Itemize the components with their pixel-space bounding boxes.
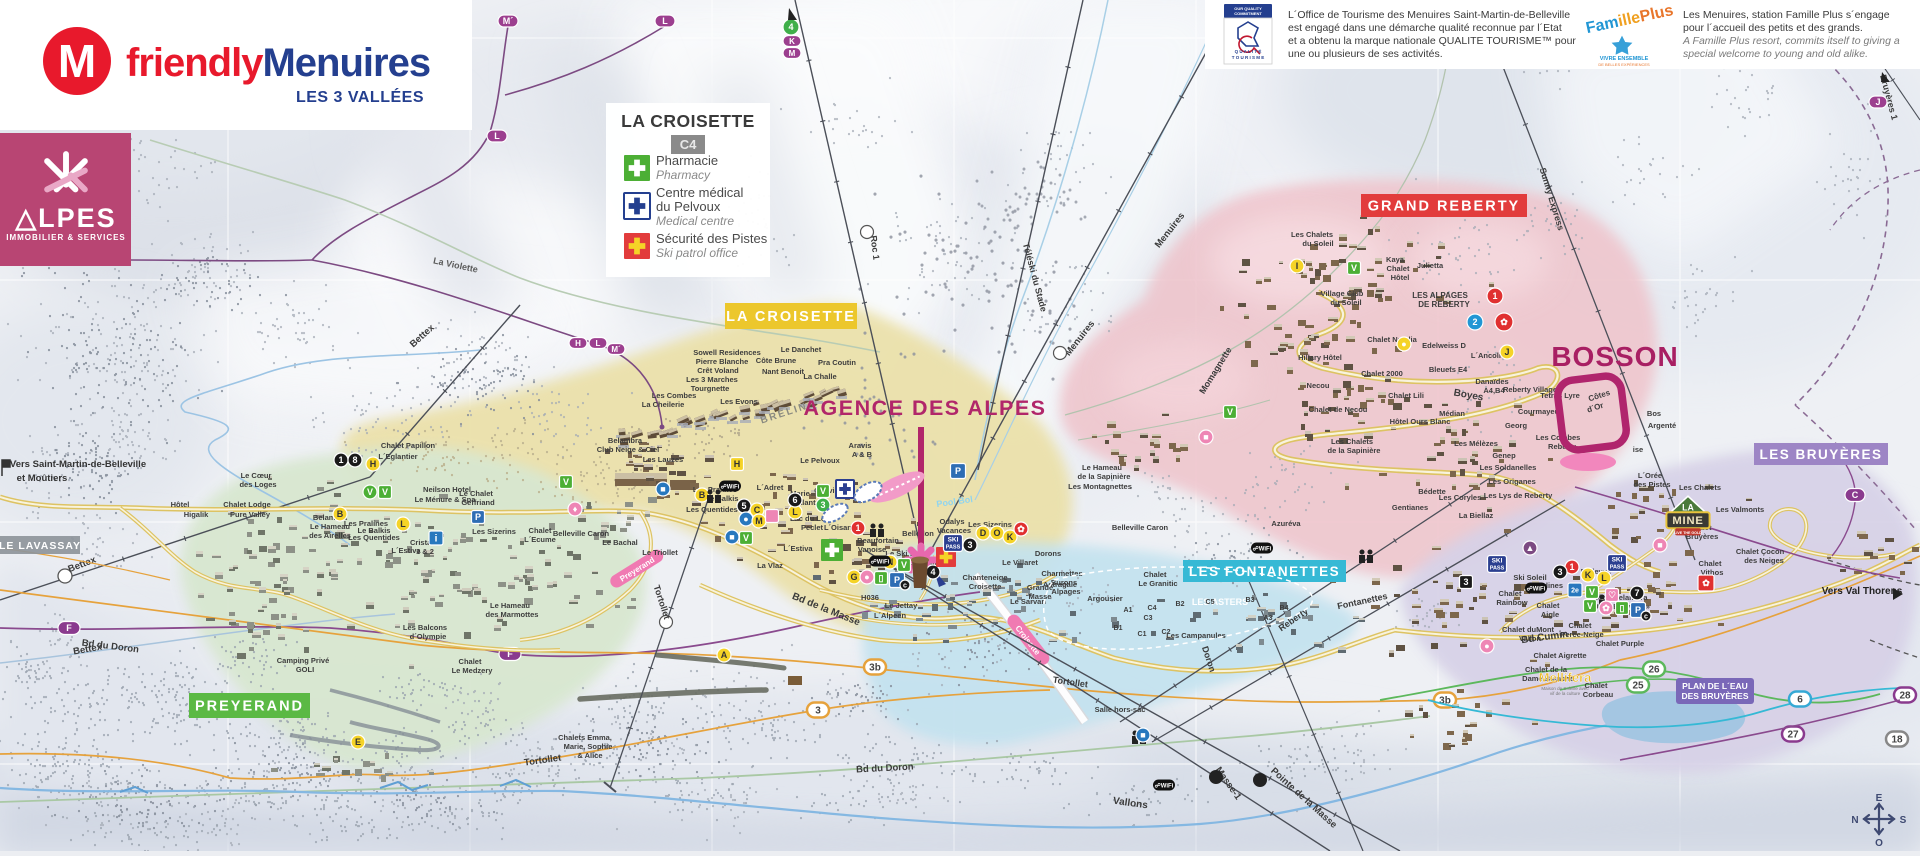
svg-text:5: 5	[741, 501, 746, 511]
svg-text:des Neiges: des Neiges	[1744, 556, 1784, 565]
svg-text:du Soleil: du Soleil	[1330, 298, 1361, 307]
svg-text:Chalets Emma,: Chalets Emma,	[558, 733, 612, 742]
svg-text:Marie, Sophie: Marie, Sophie	[564, 742, 613, 751]
svg-text:La Cheilerie: La Cheilerie	[642, 400, 685, 409]
svg-text:B4: B4	[1280, 605, 1289, 612]
svg-text:F: F	[66, 623, 72, 633]
svg-text:3: 3	[967, 540, 972, 550]
svg-text:3: 3	[1557, 567, 1562, 577]
svg-text:1: 1	[855, 523, 860, 533]
svg-text:des Airelles: des Airelles	[309, 531, 351, 540]
svg-text:d´Olympie: d´Olympie	[410, 632, 447, 641]
svg-text:Vers Saint-Martin-de-Bellevill: Vers Saint-Martin-de-Belleville	[10, 459, 146, 470]
svg-text:PASS: PASS	[1490, 566, 1505, 572]
svg-text:Chalet duMont: Chalet duMont	[1502, 625, 1555, 634]
svg-text:E: E	[1876, 793, 1883, 804]
svg-text:25: 25	[1632, 681, 1644, 692]
svg-text:PASS: PASS	[1610, 565, 1625, 571]
svg-text:28: 28	[1899, 691, 1911, 702]
svg-text:est engagé dans une démarche q: est engagé dans une démarche qualité rec…	[1288, 22, 1562, 34]
svg-text:A3: A3	[1264, 615, 1273, 622]
svg-text:Chalet: Chalet	[459, 657, 482, 666]
svg-text:Corbeau: Corbeau	[1583, 690, 1614, 699]
svg-text:C3: C3	[1144, 615, 1153, 622]
svg-text:Beaufortain: Beaufortain	[857, 536, 899, 545]
svg-text:P: P	[475, 512, 481, 522]
svg-text:26: 26	[1648, 665, 1660, 676]
svg-text:3b: 3b	[869, 663, 881, 674]
svg-text:C1: C1	[1138, 631, 1147, 638]
svg-text:Argousier: Argousier	[1087, 594, 1123, 603]
svg-text:Argenté: Argenté	[1648, 421, 1676, 430]
svg-text:Rainbow: Rainbow	[1496, 598, 1527, 607]
svg-text:27: 27	[1787, 730, 1799, 741]
svg-text:L´Alpeen: L´Alpeen	[874, 611, 907, 620]
svg-text:Le Jettay: Le Jettay	[885, 601, 918, 610]
svg-text:Nant Benoit: Nant Benoit	[762, 367, 805, 376]
svg-text:☍WiFi: ☍WiFi	[721, 484, 740, 491]
svg-text:3: 3	[1463, 577, 1468, 587]
svg-text:Les Chalets: Les Chalets	[1331, 437, 1373, 446]
svg-text:La Vlaz: La Vlaz	[757, 561, 783, 570]
svg-text:c: c	[903, 583, 907, 590]
svg-text:1 & 2: 1 & 2	[416, 547, 434, 556]
svg-text:1: 1	[1492, 291, 1497, 301]
svg-text:Aravis: Aravis	[849, 441, 872, 450]
svg-text:Le Bachal: Le Bachal	[602, 538, 637, 547]
svg-text:Chalet: Chalet	[1499, 589, 1522, 598]
svg-text:du Soleil: du Soleil	[1302, 239, 1333, 248]
svg-text:DES BRUYÈRES: DES BRUYÈRES	[1681, 691, 1748, 701]
svg-text:A & B: A & B	[852, 450, 873, 459]
svg-text:LES ASTERS: LES ASTERS	[1192, 597, 1248, 607]
svg-text:B1: B1	[1114, 625, 1123, 632]
svg-text:4: 4	[788, 22, 793, 32]
svg-text:■: ■	[1140, 730, 1145, 740]
svg-text:V: V	[563, 477, 569, 487]
svg-text:Chalet: Chalet	[529, 526, 552, 535]
svg-text:4: 4	[930, 567, 935, 577]
svg-text:V: V	[1227, 407, 1233, 417]
svg-text:♦: ♦	[573, 504, 578, 514]
svg-text:LES ALPAGES: LES ALPAGES	[1412, 291, 1468, 300]
svg-text:K: K	[1585, 570, 1592, 580]
svg-text:Club Neige & Ciel: Club Neige & Ciel	[597, 445, 660, 454]
svg-text:●: ●	[1401, 339, 1406, 349]
svg-text:7: 7	[1634, 588, 1639, 598]
svg-text:Belambra: Belambra	[608, 436, 643, 445]
svg-text:LA: LA	[1682, 503, 1694, 513]
svg-text:Le Granitic: Le Granitic	[1138, 579, 1177, 588]
svg-text:Centre médical: Centre médical	[656, 185, 744, 200]
svg-text:L: L	[400, 519, 406, 529]
svg-text:Village Club: Village Club	[1321, 289, 1364, 298]
svg-text:DE BELLES EXPÉRIENCES: DE BELLES EXPÉRIENCES	[1598, 62, 1650, 67]
svg-text:Les Soldanelles: Les Soldanelles	[1480, 463, 1537, 472]
svg-text:Bos: Bos	[1647, 409, 1661, 418]
svg-text:des Pistes: des Pistes	[1633, 480, 1670, 489]
svg-text:Les Lauzes: Les Lauzes	[643, 455, 683, 464]
svg-text:L´Estiva: L´Estiva	[783, 544, 813, 553]
svg-text:Vers Val Thorens: Vers Val Thorens	[1822, 586, 1903, 597]
svg-text:des Loges: des Loges	[239, 480, 276, 489]
svg-text:Les Lys de Reberty: Les Lys de Reberty	[1484, 491, 1553, 500]
svg-text:Hillary Hôtel: Hillary Hôtel	[1298, 353, 1342, 362]
svg-text:V: V	[820, 486, 826, 496]
svg-text:ise: ise	[1633, 445, 1643, 454]
svg-text:Médian: Médian	[1439, 409, 1465, 418]
svg-text:V: V	[901, 560, 907, 570]
svg-text:La Biellaz: La Biellaz	[1459, 511, 1494, 520]
svg-text:C: C	[1852, 490, 1859, 500]
svg-text:M´: M´	[503, 16, 514, 26]
svg-text:Perce-Neige: Perce-Neige	[1560, 630, 1603, 639]
svg-text:▯: ▯	[1620, 603, 1625, 613]
svg-text:LA CROISETTE: LA CROISETTE	[621, 111, 755, 131]
svg-text:Le Medzery: Le Medzery	[452, 666, 494, 675]
svg-text:Le Danchet: Le Danchet	[781, 345, 822, 354]
svg-text:V: V	[743, 533, 749, 543]
svg-text:●: ●	[743, 514, 748, 524]
svg-text:Chalet de Necou: Chalet de Necou	[1309, 405, 1368, 414]
svg-text:L´Ecume: L´Ecume	[524, 535, 556, 544]
svg-text:A1: A1	[1124, 607, 1133, 614]
svg-text:Chalet: Chalet	[1569, 621, 1592, 630]
svg-text:AGENCE DES ALPES: AGENCE DES ALPES	[803, 396, 1046, 420]
svg-text:Chalet Çocon: Chalet Çocon	[1736, 547, 1785, 556]
svg-text:3: 3	[815, 706, 821, 717]
svg-text:I: I	[1296, 261, 1299, 271]
svg-text:18: 18	[1891, 735, 1903, 746]
svg-text:✿: ✿	[1602, 603, 1610, 613]
svg-text:☍WiFi: ☍WiFi	[1155, 783, 1174, 790]
svg-text:▲: ▲	[1526, 543, 1535, 553]
svg-text:Chalet: Chalet	[1387, 264, 1410, 273]
svg-text:Le Sarvan: Le Sarvan	[1010, 597, 1046, 606]
svg-text:Camping Privé: Camping Privé	[277, 656, 330, 665]
svg-text:LES BRUYÈRES: LES BRUYÈRES	[1759, 447, 1882, 462]
svg-text:6: 6	[792, 495, 797, 505]
svg-text:DE REBERTY: DE REBERTY	[1418, 300, 1470, 309]
svg-text:special welcome to young and o: special welcome to young and old alike.	[1683, 48, 1868, 60]
svg-text:Les Valmonts: Les Valmonts	[1716, 505, 1764, 514]
svg-text:Sowell Residences: Sowell Residences	[693, 348, 761, 357]
svg-text:Aigle: Aigle	[1541, 610, 1559, 619]
svg-text:J: J	[1504, 347, 1509, 357]
svg-text:3: 3	[820, 500, 825, 510]
svg-text:1: 1	[1569, 562, 1574, 572]
svg-text:■: ■	[1657, 540, 1662, 550]
svg-text:Croisette: Croisette	[969, 582, 1002, 591]
svg-text:▯: ▯	[879, 573, 884, 583]
svg-text:PASS: PASS	[946, 545, 961, 551]
svg-text:Le Hameau: Le Hameau	[1082, 463, 1122, 472]
svg-text:une ou plusieurs de ses activi: une ou plusieurs de ses activités.	[1288, 48, 1443, 60]
svg-text:Les Chalets: Les Chalets	[1291, 230, 1333, 239]
svg-text:et a obtenu la marque national: et a obtenu la marque nationale QUALITE …	[1288, 35, 1576, 47]
svg-text:Le Pelvoux: Le Pelvoux	[800, 456, 840, 465]
svg-text:D: D	[980, 528, 987, 538]
svg-text:des Marmottes: des Marmottes	[486, 610, 539, 619]
svg-text:Les Mélèzes: Les Mélèzes	[1454, 439, 1498, 448]
svg-text:✿: ✿	[1702, 578, 1710, 588]
svg-text:L: L	[494, 131, 500, 141]
svg-text:Sécurité des Pistes: Sécurité des Pistes	[656, 231, 768, 246]
svg-text:Hôtel: Hôtel	[1391, 273, 1410, 282]
svg-text:Astragale: Astragale	[1043, 580, 1077, 589]
svg-text:Q U A L I T É: Q U A L I T É	[1235, 47, 1262, 54]
svg-text:Les Quentides: Les Quentides	[348, 533, 400, 542]
svg-text:Pharmacie: Pharmacie	[656, 153, 718, 168]
svg-text:Gentianes: Gentianes	[1392, 503, 1428, 512]
svg-text:C4: C4	[680, 137, 697, 152]
svg-text:de la Sapinière: de la Sapinière	[1328, 446, 1381, 455]
svg-text:BOSSON: BOSSON	[1551, 341, 1678, 372]
svg-text:Le Cœur: Le Cœur	[241, 471, 272, 480]
svg-text:V: V	[1587, 601, 1593, 611]
svg-text:i: i	[435, 534, 438, 545]
svg-text:Necou: Necou	[1307, 381, 1330, 390]
svg-text:H036: H036	[861, 593, 879, 602]
svg-text:H: H	[370, 459, 377, 469]
svg-text:B: B	[699, 490, 706, 500]
svg-text:L: L	[662, 16, 668, 26]
svg-text:M: M	[755, 516, 763, 526]
svg-text:Hôtel Ours Blanc: Hôtel Ours Blanc	[1390, 417, 1451, 426]
svg-text:V: V	[1589, 587, 1595, 597]
svg-text:Le Ménure & Spa: Le Ménure & Spa	[415, 495, 477, 504]
svg-text:et Moûtiers: et Moûtiers	[17, 473, 68, 484]
svg-text:Edelweiss D: Edelweiss D	[1422, 341, 1466, 350]
svg-text:pour l´accueil des petits et d: pour l´accueil des petits et des grands.	[1683, 22, 1863, 34]
svg-text:Higalik: Higalik	[184, 510, 209, 519]
svg-text:Ski patrol office: Ski patrol office	[656, 246, 738, 260]
svg-text:SKI: SKI	[948, 537, 959, 544]
svg-text:Chalet Purple: Chalet Purple	[1596, 639, 1644, 648]
svg-text:M: M	[789, 49, 796, 58]
svg-text:S: S	[1900, 815, 1907, 826]
svg-text:L´Office de Tourisme des Menui: L´Office de Tourisme des Menuires Saint-…	[1288, 9, 1570, 21]
svg-text:L´Orée: L´Orée	[1638, 471, 1662, 480]
svg-text:MINE: MINE	[1672, 515, 1703, 527]
svg-text:Pharmacy: Pharmacy	[656, 168, 711, 182]
svg-text:■: ■	[729, 532, 734, 542]
svg-text:✿: ✿	[1500, 317, 1508, 327]
svg-text:Le Triollet: Le Triollet	[642, 548, 678, 557]
svg-text:Hôtel: Hôtel	[171, 500, 190, 509]
svg-text:Vallon: Vallon	[1519, 634, 1542, 643]
svg-text:P: P	[894, 575, 900, 585]
svg-text:Peclet: Peclet	[801, 523, 824, 532]
svg-text:du Pelvoux: du Pelvoux	[656, 199, 721, 214]
svg-text:GRAND REBERTY: GRAND REBERTY	[1368, 199, 1520, 215]
svg-text:●: ●	[864, 572, 869, 582]
svg-text:Les Balcons: Les Balcons	[403, 623, 447, 632]
svg-text:Pure Valley: Pure Valley	[230, 510, 271, 519]
svg-text:■: ■	[1203, 432, 1208, 442]
svg-text:Les Campanules: Les Campanules	[1166, 631, 1226, 640]
svg-text:Les Origanes: Les Origanes	[1488, 477, 1536, 486]
svg-text:Chalet Lili: Chalet Lili	[1388, 391, 1424, 400]
svg-text:L´Adret: L´Adret	[757, 483, 784, 492]
svg-text:Pierre Blanche: Pierre Blanche	[696, 357, 749, 366]
svg-text:H: H	[734, 459, 741, 469]
svg-text:O: O	[993, 528, 1000, 538]
svg-text:PREYERAND: PREYERAND	[195, 699, 304, 715]
svg-text:LIVE THE GOLD: LIVE THE GOLD	[1674, 531, 1702, 535]
svg-text:Neilson Hotel: Neilson Hotel	[423, 485, 471, 494]
svg-text:H: H	[575, 339, 581, 348]
svg-text:Chalet: Chalet	[1699, 559, 1722, 568]
svg-text:Tourgnette: Tourgnette	[691, 384, 730, 393]
svg-text:L: L	[596, 339, 601, 348]
svg-text:Chalet: Chalet	[1537, 601, 1560, 610]
svg-text:Les Chalets: Les Chalets	[1679, 483, 1721, 492]
svg-text:L: L	[792, 507, 798, 517]
svg-text:V: V	[382, 487, 388, 497]
svg-text:Belleville Caron: Belleville Caron	[553, 529, 610, 538]
svg-text:Chalet Aigrette: Chalet Aigrette	[1533, 651, 1586, 660]
svg-text:Les Combes: Les Combes	[652, 391, 697, 400]
svg-text:Dorons: Dorons	[1035, 549, 1061, 558]
svg-text:C4: C4	[1148, 605, 1157, 612]
svg-text:Mellifera: Mellifera	[1539, 670, 1593, 685]
svg-text:L: L	[1601, 573, 1607, 583]
svg-text:de la Sapinière: de la Sapinière	[1078, 472, 1131, 481]
svg-text:V: V	[1351, 263, 1357, 273]
svg-text:Charmettes: Charmettes	[1041, 569, 1082, 578]
svg-text:LES 3 VALLÉES: LES 3 VALLÉES	[296, 87, 424, 106]
svg-text:Les Evons: Les Evons	[720, 397, 758, 406]
svg-text:2e: 2e	[1571, 588, 1579, 595]
svg-text:Chalet: Chalet	[1144, 570, 1167, 579]
svg-text:T O U R I S M E: T O U R I S M E	[1232, 55, 1265, 60]
svg-text:Les Sizerins: Les Sizerins	[968, 520, 1012, 529]
svg-text:friendlyMenuires: friendlyMenuires	[126, 41, 430, 85]
svg-text:E: E	[355, 737, 361, 747]
svg-text:Les 3 Marches: Les 3 Marches	[686, 375, 738, 384]
svg-text:B2: B2	[1176, 601, 1185, 608]
svg-text:Les Menuires, station Famille: Les Menuires, station Famille Plus s´eng…	[1683, 9, 1890, 21]
svg-text:B: B	[337, 509, 344, 519]
svg-text:V: V	[367, 487, 373, 497]
svg-text:Les Combes: Les Combes	[1536, 433, 1581, 442]
svg-text:K: K	[789, 37, 795, 46]
svg-text:& Alice: & Alice	[577, 751, 602, 760]
svg-text:Julietta: Julietta	[1417, 261, 1444, 270]
svg-text:Vacances: Vacances	[937, 526, 971, 535]
svg-text:☍WiFi: ☍WiFi	[871, 559, 890, 566]
svg-text:LA CROISETTE: LA CROISETTE	[726, 309, 856, 325]
svg-text:1: 1	[338, 455, 343, 465]
svg-text:Les Sizerins: Les Sizerins	[472, 527, 516, 536]
svg-text:Les Quentides: Les Quentides	[686, 505, 738, 514]
svg-text:Georg: Georg	[1505, 421, 1528, 430]
svg-text:C5: C5	[1206, 599, 1215, 606]
svg-text:G: G	[850, 572, 857, 582]
svg-text:SKI: SKI	[1492, 558, 1503, 565]
svg-text:Chalet 2000: Chalet 2000	[1361, 369, 1403, 378]
svg-text:M: M	[58, 35, 96, 87]
svg-text:△LPES: △LPES	[14, 203, 116, 233]
svg-text:✿: ✿	[1017, 524, 1025, 534]
svg-text:■: ■	[660, 484, 665, 494]
svg-text:Le Villaret: Le Villaret	[1002, 558, 1038, 567]
svg-text:Odalys: Odalys	[939, 517, 964, 526]
svg-text:Les Montagnettes: Les Montagnettes	[1068, 482, 1132, 491]
svg-text:Bleuets E4: Bleuets E4	[1429, 365, 1468, 374]
svg-text:c: c	[1644, 614, 1648, 621]
svg-text:Chalet Lodge: Chalet Lodge	[223, 500, 271, 509]
svg-text:La Challe: La Challe	[803, 372, 836, 381]
svg-text:PLAN DE L´EAU: PLAN DE L´EAU	[1682, 681, 1748, 691]
svg-text:K: K	[1007, 532, 1014, 542]
svg-text:Côte Brune: Côte Brune	[756, 356, 796, 365]
svg-text:Les Coryles: Les Coryles	[1439, 493, 1482, 502]
svg-text:Kaya: Kaya	[1386, 255, 1405, 264]
svg-text:M´: M´	[611, 345, 621, 354]
svg-text:Medical centre: Medical centre	[656, 214, 734, 228]
svg-text:O: O	[1875, 838, 1883, 849]
svg-text:Salle hors-sac: Salle hors-sac	[1095, 705, 1146, 714]
svg-text:P: P	[1635, 605, 1641, 615]
svg-text:P: P	[955, 466, 961, 476]
svg-text:Chanteneige: Chanteneige	[962, 573, 1007, 582]
svg-text:Vanoise: Vanoise	[858, 545, 886, 554]
svg-text:GOLI: GOLI	[296, 665, 314, 674]
svg-text:LE LAVASSAY: LE LAVASSAY	[0, 540, 81, 552]
svg-text:Genep: Genep	[1492, 451, 1516, 460]
svg-text:8: 8	[352, 455, 357, 465]
svg-text:Pra Coutin: Pra Coutin	[818, 358, 856, 367]
svg-text:♡: ♡	[1608, 590, 1616, 600]
svg-text:Le Hameau: Le Hameau	[490, 601, 530, 610]
svg-text:L´Eglantier: L´Eglantier	[378, 452, 417, 461]
svg-text:A: A	[721, 650, 728, 660]
svg-text:Belleville Caron: Belleville Caron	[1112, 523, 1169, 532]
svg-text:A Famille Plus resort, commits: A Famille Plus resort, commits itself to…	[1682, 35, 1900, 47]
svg-text:vif de la culture: vif de la culture	[1550, 691, 1581, 696]
svg-text:N: N	[1851, 815, 1858, 826]
svg-text:2: 2	[1472, 317, 1477, 327]
svg-text:6: 6	[1797, 695, 1803, 706]
svg-text:Le Hameau: Le Hameau	[310, 522, 350, 531]
svg-text:☍WiFi: ☍WiFi	[1527, 586, 1546, 593]
svg-text:IMMOBILIER & SERVICES: IMMOBILIER & SERVICES	[6, 233, 126, 242]
svg-text:COMMITMENT: COMMITMENT	[1234, 11, 1262, 16]
svg-text:Azuréva: Azuréva	[1271, 519, 1301, 528]
svg-text:B3: B3	[1246, 597, 1255, 604]
svg-text:LES FONTANETTES: LES FONTANETTES	[1189, 564, 1340, 579]
svg-text:Chalet Papillon: Chalet Papillon	[381, 441, 436, 450]
svg-text:☍WiFi: ☍WiFi	[1253, 546, 1272, 553]
svg-text:Crêt Voland: Crêt Voland	[697, 366, 739, 375]
svg-text:J: J	[1875, 97, 1880, 107]
svg-text:●: ●	[1484, 641, 1489, 651]
svg-text:SKI: SKI	[1612, 557, 1623, 564]
